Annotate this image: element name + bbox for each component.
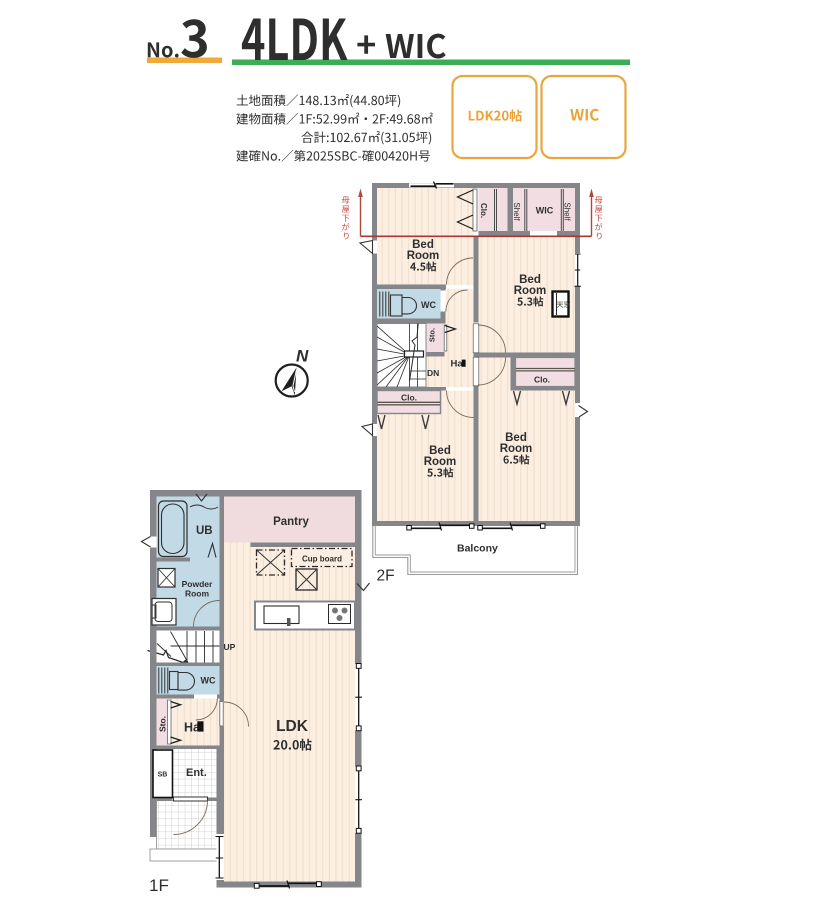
svg-text:1F: 1F [149, 876, 169, 895]
svg-text:SB: SB [158, 772, 168, 779]
svg-text:Clo.: Clo. [534, 375, 550, 385]
svg-text:Clo.: Clo. [479, 203, 488, 218]
svg-text:Shelf: Shelf [563, 202, 572, 221]
svg-text:LDK: LDK [276, 718, 309, 735]
svg-text:WC: WC [421, 300, 436, 310]
svg-text:Room: Room [500, 443, 533, 455]
svg-text:Cup board: Cup board [302, 555, 342, 564]
svg-text:Balcony: Balcony [457, 543, 498, 555]
svg-text:Shelf: Shelf [512, 202, 521, 221]
svg-text:UP: UP [224, 642, 236, 652]
svg-text:Room: Room [407, 250, 440, 262]
svg-text:Room: Room [424, 456, 457, 468]
svg-text:Clo.: Clo. [401, 393, 417, 403]
svg-text:Powder: Powder [182, 579, 213, 589]
svg-text:WIC: WIC [536, 206, 554, 216]
svg-text:WC: WC [201, 676, 216, 686]
svg-text:Sto.: Sto. [428, 328, 437, 342]
svg-text:Room: Room [514, 285, 547, 297]
svg-text:UB: UB [196, 525, 213, 537]
svg-text:Sto.: Sto. [157, 716, 167, 732]
svg-text:Ent.: Ent. [186, 767, 207, 779]
svg-text:Pantry: Pantry [273, 516, 309, 528]
svg-text:Room: Room [185, 589, 210, 599]
svg-text:Ha: Ha [451, 359, 464, 370]
svg-text:2F: 2F [377, 568, 395, 585]
svg-text:DN: DN [427, 368, 439, 378]
svg-text:N: N [296, 347, 309, 366]
